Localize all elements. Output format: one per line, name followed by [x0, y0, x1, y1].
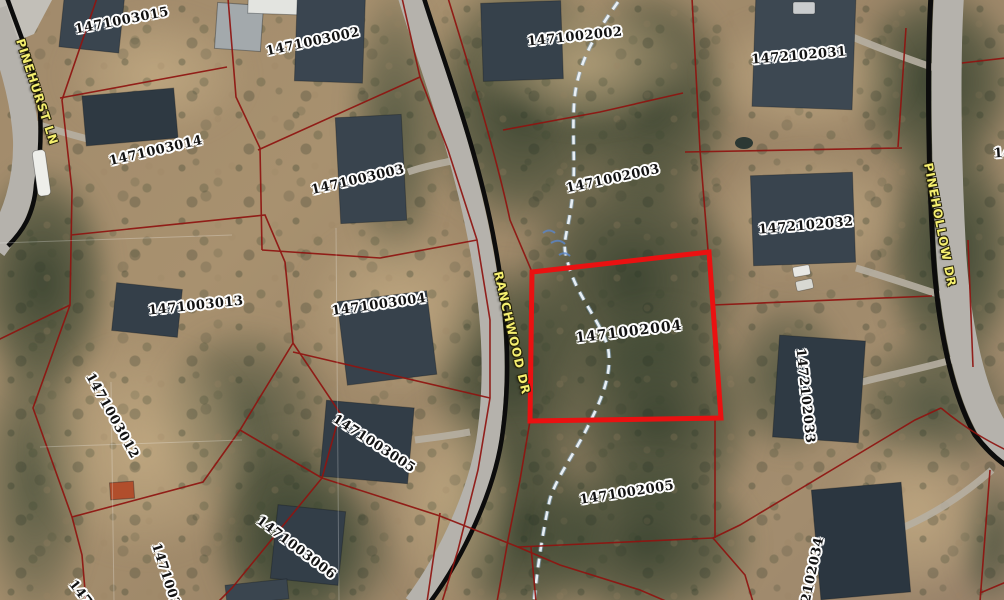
parcel-label-1471003015[interactable]: 1471003015: [74, 6, 170, 37]
parcel-label-1471003014[interactable]: 1471003014: [108, 134, 204, 168]
parcel-label-1471002004[interactable]: 1471002004: [575, 319, 683, 346]
parcel-label-1471003013[interactable]: 1471003013: [148, 295, 244, 318]
street-label-ranchwood-dr: RANCHWOOD DR: [492, 270, 532, 396]
street-label-pinehurst-ln: PINEHURST LN: [14, 37, 60, 146]
parcel-label-1472102032[interactable]: 1472102032: [758, 215, 854, 236]
parcel-label-1471002002[interactable]: 1471002002: [527, 26, 623, 49]
parcel-label-1471[interactable]: 1471: [66, 578, 100, 600]
parcel-label-1471003004[interactable]: 1471003004: [331, 292, 427, 318]
map-canvas[interactable]: 1471003015147100300214710020021472102031…: [0, 0, 1004, 600]
parcel-label-1471003003[interactable]: 1471003003: [310, 163, 406, 197]
parcel-label-1471002003[interactable]: 1471002003: [565, 163, 661, 196]
labels-layer: 1471003015147100300214710020021472102031…: [0, 0, 1004, 600]
parcel-label-14710030[interactable]: 14710030: [149, 542, 185, 600]
parcel-label-1471003005[interactable]: 1471003005: [330, 413, 417, 476]
parcel-label-1471003006[interactable]: 1471003006: [254, 514, 338, 582]
parcel-label-1471003002[interactable]: 1471003002: [265, 26, 361, 59]
parcel-label-1472102031[interactable]: 1472102031: [751, 45, 847, 66]
parcel-label-1471002005[interactable]: 1471002005: [579, 479, 675, 507]
parcel-label-147[interactable]: 147: [993, 146, 1004, 161]
parcel-label-1471003012[interactable]: 1471003012: [83, 371, 141, 461]
parcel-label-1472102033[interactable]: 1472102033: [794, 348, 817, 444]
parcel-label-1472102034[interactable]: 1472102034: [794, 536, 827, 600]
street-label-pinehollow-dr: PINEHOLLOW DR: [922, 162, 958, 288]
